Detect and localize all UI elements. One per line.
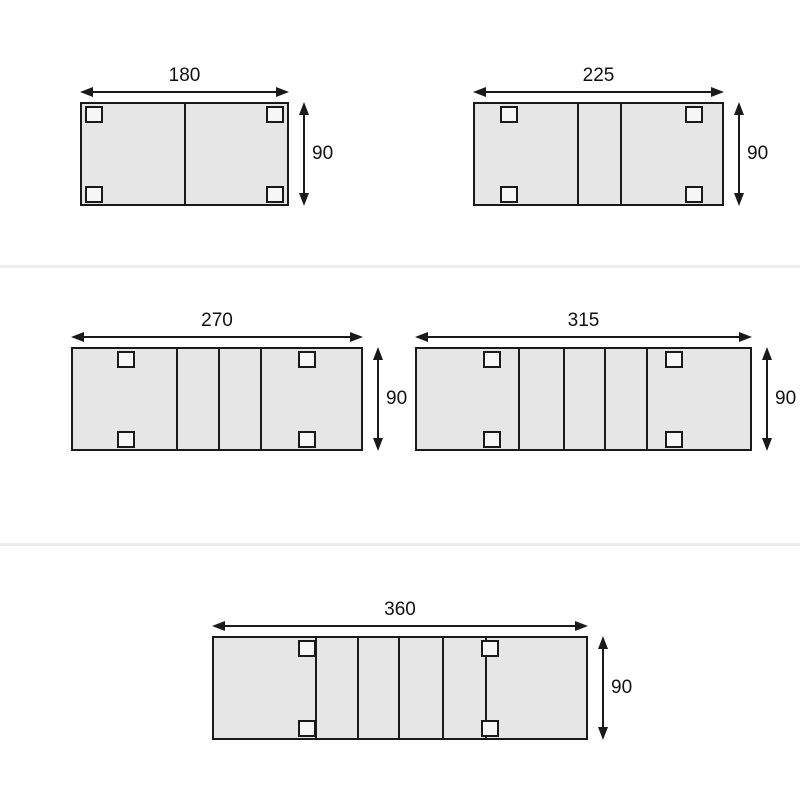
arrow-head-right-icon: [739, 332, 752, 342]
width-dimension-label: 180: [80, 65, 289, 87]
arrow-head-left-icon: [71, 332, 84, 342]
extension-leaf-divider: [518, 347, 520, 451]
table-leg: [665, 351, 683, 368]
height-dimension-label: 90: [386, 388, 407, 410]
extension-leaf-divider: [563, 347, 565, 451]
height-dimension-arrow: [373, 347, 383, 451]
arrow-head-down-icon: [598, 727, 608, 740]
height-dimension-arrow: [299, 102, 309, 206]
arrow-head-down-icon: [299, 193, 309, 206]
height-dimension-arrow: [734, 102, 744, 206]
table-leg: [298, 431, 316, 448]
height-dimension-label: 90: [775, 388, 796, 410]
arrow-head-up-icon: [762, 347, 772, 360]
extension-leaf-divider: [218, 347, 220, 451]
table-leg: [266, 186, 284, 203]
height-dimension-label: 90: [747, 143, 768, 165]
width-dimension-label: 360: [212, 599, 588, 621]
tabletop-outline: [71, 347, 363, 451]
arrow-shaft: [738, 111, 740, 197]
width-dimension-arrow: [212, 621, 588, 631]
extension-leaf-divider: [646, 347, 648, 451]
dimension-sheet: 1809022590270903159036090: [0, 0, 800, 800]
row-separator: [0, 265, 800, 268]
arrow-shaft: [303, 111, 305, 197]
table-leg: [483, 351, 501, 368]
table-leg: [85, 186, 103, 203]
arrow-head-down-icon: [762, 438, 772, 451]
row-separator: [0, 543, 800, 546]
arrow-head-up-icon: [598, 636, 608, 649]
table-leg: [500, 106, 518, 123]
table-leg: [481, 640, 499, 657]
arrow-head-down-icon: [373, 438, 383, 451]
width-dimension-arrow: [473, 87, 724, 97]
arrow-shaft: [424, 336, 743, 338]
arrow-shaft: [602, 645, 604, 731]
extension-leaf-divider: [577, 102, 579, 206]
table-leg: [117, 351, 135, 368]
arrow-head-down-icon: [734, 193, 744, 206]
table-leg: [266, 106, 284, 123]
arrow-shaft: [766, 356, 768, 442]
arrow-shaft: [482, 91, 715, 93]
width-dimension-label: 270: [71, 310, 363, 332]
arrow-shaft: [89, 91, 280, 93]
arrow-shaft: [80, 336, 354, 338]
table-leg: [685, 186, 703, 203]
arrow-head-left-icon: [80, 87, 93, 97]
arrow-head-up-icon: [734, 102, 744, 115]
extension-leaf-divider: [398, 636, 400, 740]
table-leg: [85, 106, 103, 123]
extension-leaf-divider: [176, 347, 178, 451]
arrow-head-left-icon: [415, 332, 428, 342]
arrow-head-right-icon: [575, 621, 588, 631]
extension-leaf-divider: [604, 347, 606, 451]
table-leg: [500, 186, 518, 203]
extension-leaf-divider: [357, 636, 359, 740]
height-dimension-arrow: [762, 347, 772, 451]
arrow-head-right-icon: [276, 87, 289, 97]
width-dimension-arrow: [415, 332, 752, 342]
width-dimension-label: 225: [473, 65, 724, 87]
table-leg: [483, 431, 501, 448]
extension-leaf-divider: [184, 102, 186, 206]
arrow-head-up-icon: [299, 102, 309, 115]
tabletop-outline: [212, 636, 588, 740]
table-leg: [298, 640, 316, 657]
arrow-head-left-icon: [212, 621, 225, 631]
arrow-shaft: [377, 356, 379, 442]
extension-leaf-divider: [260, 347, 262, 451]
extension-leaf-divider: [620, 102, 622, 206]
width-dimension-arrow: [80, 87, 289, 97]
tabletop-outline: [415, 347, 752, 451]
width-dimension-arrow: [71, 332, 363, 342]
table-leg: [665, 431, 683, 448]
height-dimension-arrow: [598, 636, 608, 740]
table-leg: [117, 431, 135, 448]
width-dimension-label: 315: [415, 310, 752, 332]
arrow-head-up-icon: [373, 347, 383, 360]
table-leg: [298, 720, 316, 737]
height-dimension-label: 90: [312, 143, 333, 165]
arrow-head-left-icon: [473, 87, 486, 97]
arrow-head-right-icon: [350, 332, 363, 342]
height-dimension-label: 90: [611, 677, 632, 699]
table-leg: [481, 720, 499, 737]
table-leg: [685, 106, 703, 123]
table-leg: [298, 351, 316, 368]
extension-leaf-divider: [442, 636, 444, 740]
arrow-head-right-icon: [711, 87, 724, 97]
arrow-shaft: [221, 625, 579, 627]
